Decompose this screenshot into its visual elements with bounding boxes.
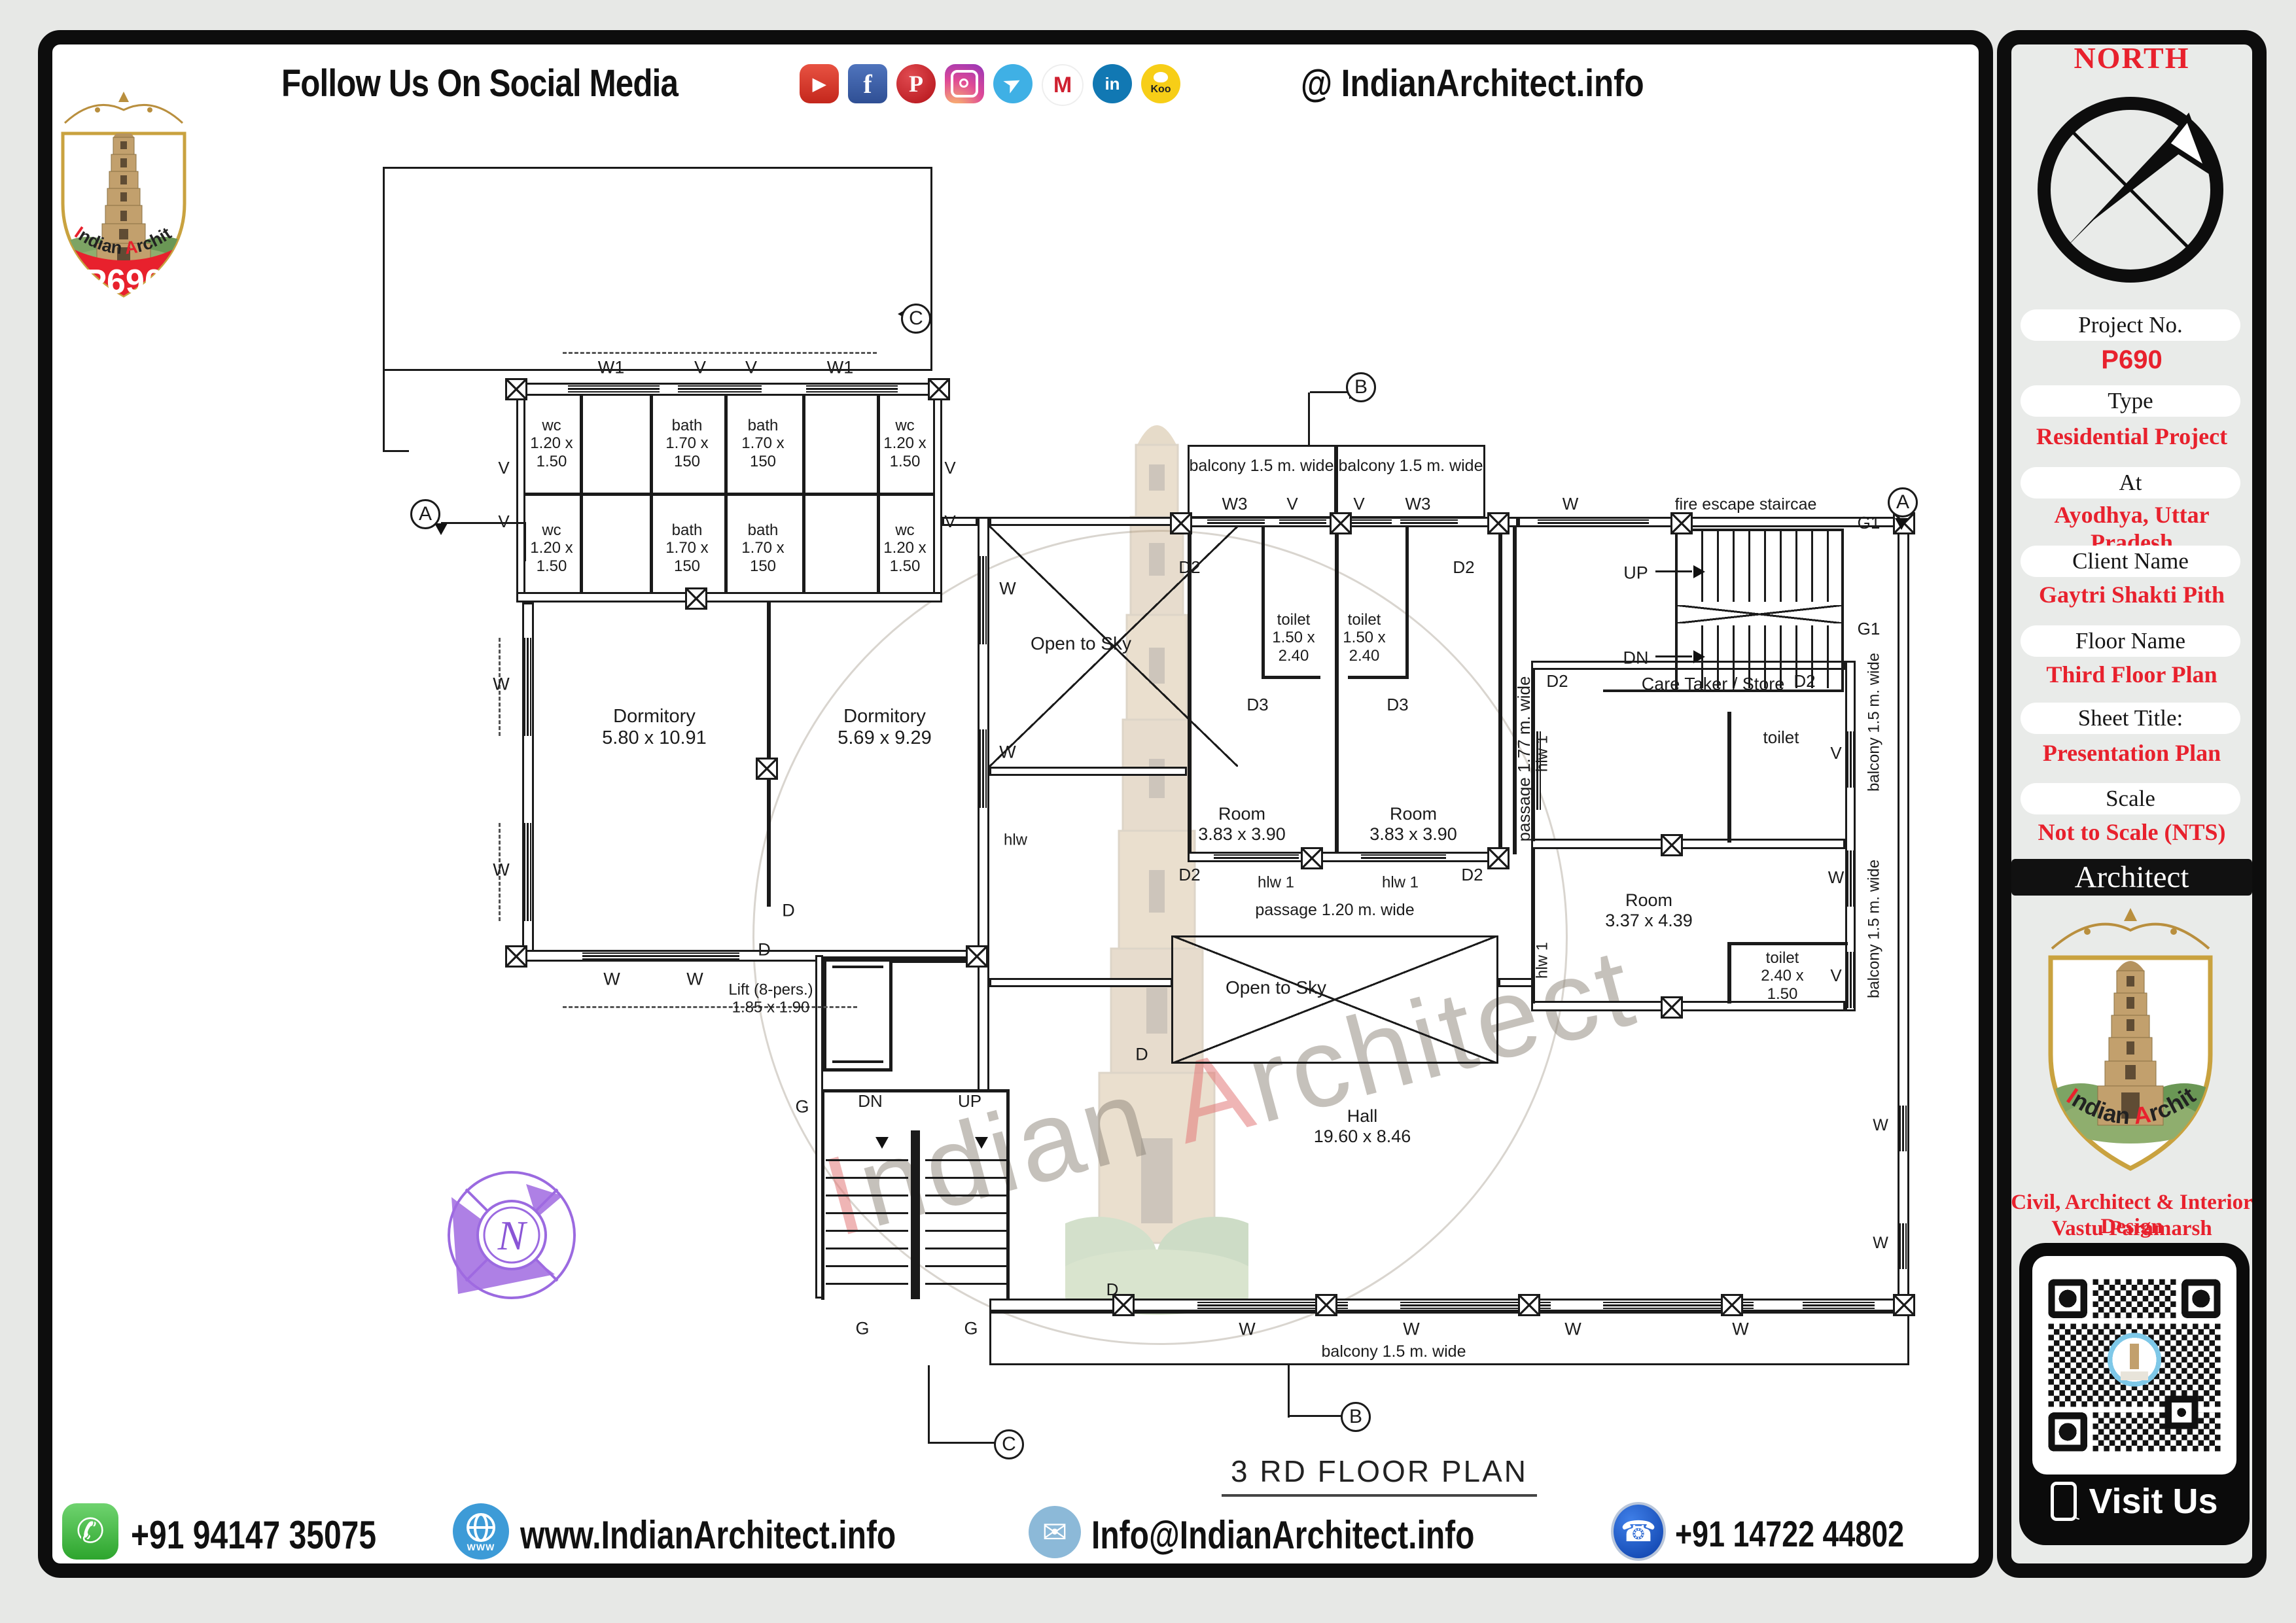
window (678, 385, 762, 393)
plan-label: hlw 1 (1533, 942, 1551, 979)
partition-wall (1727, 712, 1731, 843)
column-post (1518, 1294, 1540, 1316)
plan-label: Room 3.83 x 3.90 (1369, 804, 1457, 845)
plan-label: W (603, 969, 620, 990)
floor-plan: W1VVW1wc 1.20 x 1.50bath 1.70 x 150bath … (0, 0, 2296, 1623)
plan-label: G1 (1858, 620, 1881, 639)
column-post (756, 758, 778, 780)
plan-label: G (795, 1097, 809, 1117)
window (980, 556, 987, 644)
window (1400, 519, 1458, 527)
partition-wall (767, 602, 771, 907)
wall (1531, 839, 1845, 849)
plan-label: W (999, 742, 1016, 763)
plan-label: fire escape staircae (1675, 495, 1817, 514)
plan-label: bath 1.70 x 150 (665, 417, 708, 470)
plan-label: D2 (1453, 558, 1474, 578)
column-post (1670, 512, 1693, 534)
section-marker: B (1346, 372, 1376, 402)
window (1279, 519, 1326, 527)
reference-line (928, 1365, 930, 1444)
arrow-head (1693, 565, 1705, 578)
plan-label: W (1873, 1116, 1888, 1135)
plan-label: Care Taker / Store (1642, 674, 1785, 695)
section-marker: A (1888, 487, 1918, 517)
plan-label: W (493, 674, 509, 695)
arrow-head (1693, 650, 1705, 663)
plan-label: V (1830, 744, 1841, 763)
reference-line (441, 522, 526, 524)
partition-wall (1405, 527, 1409, 679)
plan-label: hlw 1 (1258, 873, 1294, 891)
plan-label: toilet 2.40 x 1.50 (1761, 949, 1803, 1003)
window (524, 638, 531, 736)
plan-label: V (745, 358, 757, 378)
plan-label: bath 1.70 x 150 (741, 521, 784, 575)
badge-project-no: P690 (84, 263, 163, 301)
window (1899, 1223, 1907, 1269)
plan-label: hlw (1004, 831, 1027, 848)
column-post (505, 378, 527, 400)
plan-label: V (498, 512, 509, 532)
plan-label: balcony 1.5 m. wide (1865, 653, 1882, 792)
reference-line (383, 450, 409, 452)
plan-label: bath 1.70 x 150 (665, 521, 708, 575)
window (582, 952, 739, 960)
plan-label: W (1564, 1319, 1581, 1340)
partition-wall (889, 956, 892, 1072)
plan-label: W (1732, 1319, 1748, 1340)
section-marker: A (410, 499, 440, 529)
column-post (1721, 1294, 1743, 1316)
plan-label: D2 (1178, 865, 1200, 885)
plan-label: D (1106, 1280, 1119, 1300)
plan-label: W3 (1222, 495, 1248, 514)
plan-label: wc 1.20 x 1.50 (883, 417, 926, 470)
plan-label: Room 3.83 x 3.90 (1198, 804, 1286, 845)
section-marker: C (901, 304, 931, 334)
wall (989, 978, 1173, 987)
window (1899, 1106, 1907, 1151)
plan-label: D (782, 901, 795, 921)
plan-label: Open to Sky (1226, 977, 1326, 998)
plan-label: V (944, 512, 955, 532)
plan-label: G1 (1858, 514, 1881, 533)
partition-wall (1727, 942, 1848, 945)
wall (933, 383, 942, 602)
window (806, 385, 898, 393)
plan-label: G (964, 1319, 978, 1339)
partition-wall (1262, 527, 1265, 679)
partition-wall (1348, 676, 1407, 679)
column-post (1315, 1294, 1337, 1316)
staircase-treads (826, 1159, 908, 1298)
wall (516, 383, 525, 602)
plan-label: passage 1.20 m. wide (1255, 901, 1414, 920)
window (980, 729, 987, 808)
plan-label: V (1830, 966, 1841, 986)
window (568, 385, 660, 393)
wall (1498, 978, 1534, 987)
plan-label: D (758, 940, 771, 960)
plan-label: hlw 1 (1382, 873, 1419, 891)
section-marker: B (1341, 1402, 1371, 1432)
plan-label: Lift (8-pers.) 1.85 x 1.90 (728, 981, 813, 1017)
reference-line (1308, 393, 1310, 446)
column-post (1170, 512, 1192, 534)
column-post (505, 945, 527, 968)
reference-line (928, 1442, 997, 1444)
plan-label: DN (1623, 648, 1649, 669)
partition-wall (1335, 527, 1339, 852)
arrow-head (434, 523, 448, 535)
plan-label: D (1135, 1045, 1148, 1065)
arrow-head (875, 1137, 889, 1149)
plan-label: toilet 1.50 x 2.40 (1272, 611, 1315, 665)
plan-label: wc 1.20 x 1.50 (530, 521, 573, 575)
site-compass-icon: N (446, 1170, 577, 1300)
plan-label: W (493, 860, 509, 881)
column-post (1330, 512, 1352, 534)
plan-label: passage 1.77 m. wide (1515, 676, 1534, 842)
reference-line (1655, 655, 1692, 657)
outline (383, 167, 932, 371)
wall (516, 592, 942, 602)
partition-wall (832, 966, 883, 968)
column-post (966, 945, 988, 968)
window (1803, 1302, 1875, 1309)
reference-line (1310, 391, 1348, 393)
plan-label: Hall 19.60 x 8.46 (1314, 1106, 1411, 1147)
reference-line (383, 371, 385, 451)
wall (989, 517, 1188, 526)
project-logo-badge: Indian Architect P690 (42, 82, 205, 331)
plan-label: V (1353, 495, 1364, 514)
plan-label: D3 (1246, 695, 1268, 715)
plan-label: balcony 1.5 m. wide (1190, 457, 1334, 476)
plan-label: V (1286, 495, 1298, 514)
column-post (1661, 834, 1683, 856)
reference-line (524, 522, 526, 561)
plan-label: toilet (1763, 728, 1799, 748)
partition-wall (525, 493, 933, 496)
plan-label: balcony 1.5 m. wide (1339, 457, 1483, 476)
section-marker: C (994, 1429, 1024, 1459)
plan-label: V (944, 459, 955, 478)
plan-label: wc 1.20 x 1.50 (530, 417, 573, 470)
wall (978, 962, 989, 1092)
plan-label: D2 (1461, 865, 1483, 885)
partition-wall (821, 1089, 824, 1300)
partition-wall (1727, 942, 1731, 1003)
window (1207, 519, 1265, 527)
column-post (1487, 847, 1510, 869)
plan-label: V (694, 358, 706, 378)
column-post (1893, 1294, 1915, 1316)
site-compass-n: N (497, 1212, 528, 1259)
plan-label: W (686, 969, 703, 990)
plan-label: W (1403, 1319, 1419, 1340)
partition-wall (823, 1068, 892, 1072)
plan-label: D2 (1178, 558, 1200, 578)
column-post (1301, 847, 1323, 869)
window (524, 823, 531, 921)
plan-label: Room 3.37 x 4.39 (1605, 890, 1693, 931)
plan-label: DN (858, 1092, 883, 1111)
partition-wall (1531, 849, 1535, 1003)
plan-label: W (1873, 1234, 1888, 1253)
column-post (1661, 996, 1683, 1019)
reference-line (1655, 570, 1692, 572)
partition-wall (823, 956, 892, 960)
column-post (928, 378, 950, 400)
reference-line (1288, 1415, 1344, 1417)
plan-label: UP (1623, 563, 1648, 584)
arrow-head (1895, 518, 1908, 530)
plan-label: balcony 1.5 m. wide (1322, 1342, 1466, 1361)
plan-label: wc 1.20 x 1.50 (883, 521, 926, 575)
plan-title: 3 RD FLOOR PLAN (1222, 1454, 1537, 1497)
wall (989, 767, 1187, 776)
plan-label: W (1239, 1319, 1255, 1340)
plan-label: bath 1.70 x 150 (741, 417, 784, 470)
open-to-sky-cross (1675, 605, 1844, 623)
partition-wall (911, 1130, 920, 1299)
window (1361, 854, 1446, 862)
open-to-sky-cross (1171, 935, 1498, 1064)
wall (1898, 517, 1909, 1312)
window (1847, 850, 1854, 907)
plan-label: balcony 1.5 m. wide (1865, 860, 1882, 998)
arrow-head (975, 1137, 988, 1149)
plan-label: W1 (827, 358, 854, 378)
window (1847, 952, 1854, 1008)
plan-label: Dormitory 5.80 x 10.91 (602, 706, 707, 749)
partition-wall (1498, 527, 1502, 852)
partition-wall (823, 956, 826, 1072)
plan-label: W (1563, 495, 1579, 514)
column-post (685, 587, 707, 610)
plan-label: W (1828, 868, 1845, 888)
staircase-treads (925, 1159, 1008, 1298)
plan-label: V (498, 459, 509, 478)
plan-label: D2 (1793, 672, 1815, 691)
partition-wall (832, 1060, 883, 1063)
staircase-treads (1701, 531, 1841, 602)
plan-label: W3 (1405, 495, 1431, 514)
plan-label: W (999, 579, 1016, 599)
reference-line (1288, 1365, 1290, 1418)
window (1214, 854, 1299, 862)
plan-label: D3 (1386, 695, 1408, 715)
plan-label: hlw 1 (1533, 735, 1551, 772)
plan-label: G (855, 1319, 869, 1339)
partition-wall (1262, 676, 1320, 679)
window (1847, 731, 1854, 788)
plan-label: Open to Sky (1031, 633, 1131, 654)
column-post (1487, 512, 1510, 534)
dashed-line (563, 352, 877, 354)
plan-label: toilet 1.50 x 2.40 (1343, 611, 1385, 665)
plan-label: W1 (598, 358, 625, 378)
badge-ornament (65, 105, 183, 123)
window (1538, 519, 1649, 527)
plan-label: Dormitory 5.69 x 9.29 (838, 706, 932, 749)
partition-wall (892, 956, 978, 963)
plan-label: D2 (1546, 672, 1568, 691)
plan-label: UP (958, 1092, 981, 1111)
